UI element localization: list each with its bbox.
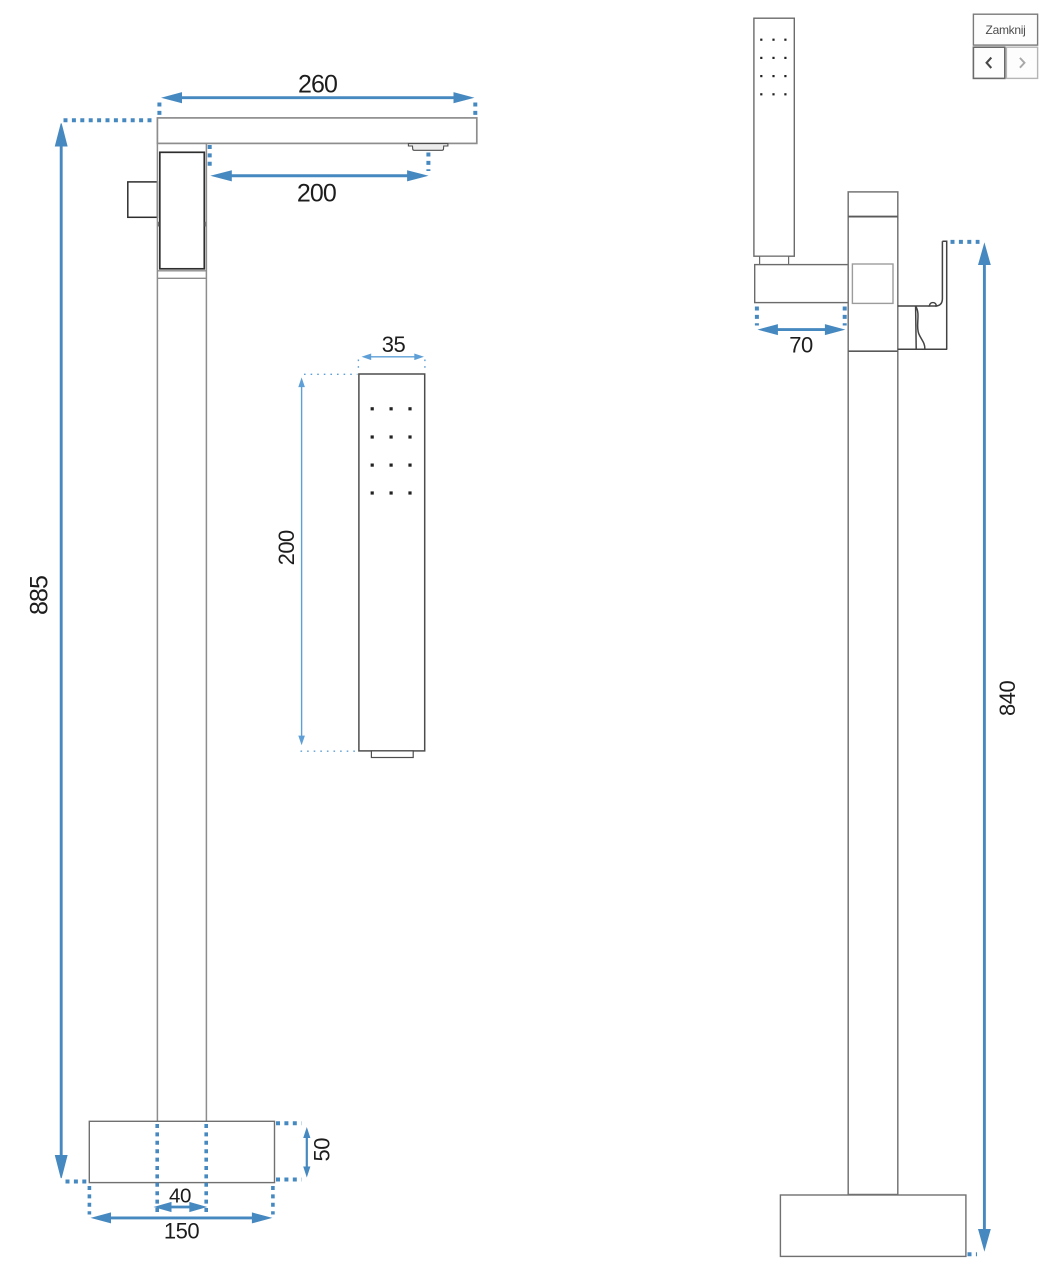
svg-text:150: 150: [164, 1219, 199, 1244]
svg-text:50: 50: [309, 1138, 334, 1162]
svg-text:35: 35: [382, 332, 406, 357]
svg-text:885: 885: [25, 576, 53, 615]
svg-text:70: 70: [789, 332, 813, 357]
svg-text:200: 200: [274, 530, 299, 565]
svg-text:Zamknij: Zamknij: [986, 23, 1026, 37]
svg-text:840: 840: [995, 681, 1020, 716]
svg-text:260: 260: [298, 71, 337, 99]
svg-text:200: 200: [297, 180, 336, 208]
svg-text:40: 40: [169, 1185, 191, 1208]
